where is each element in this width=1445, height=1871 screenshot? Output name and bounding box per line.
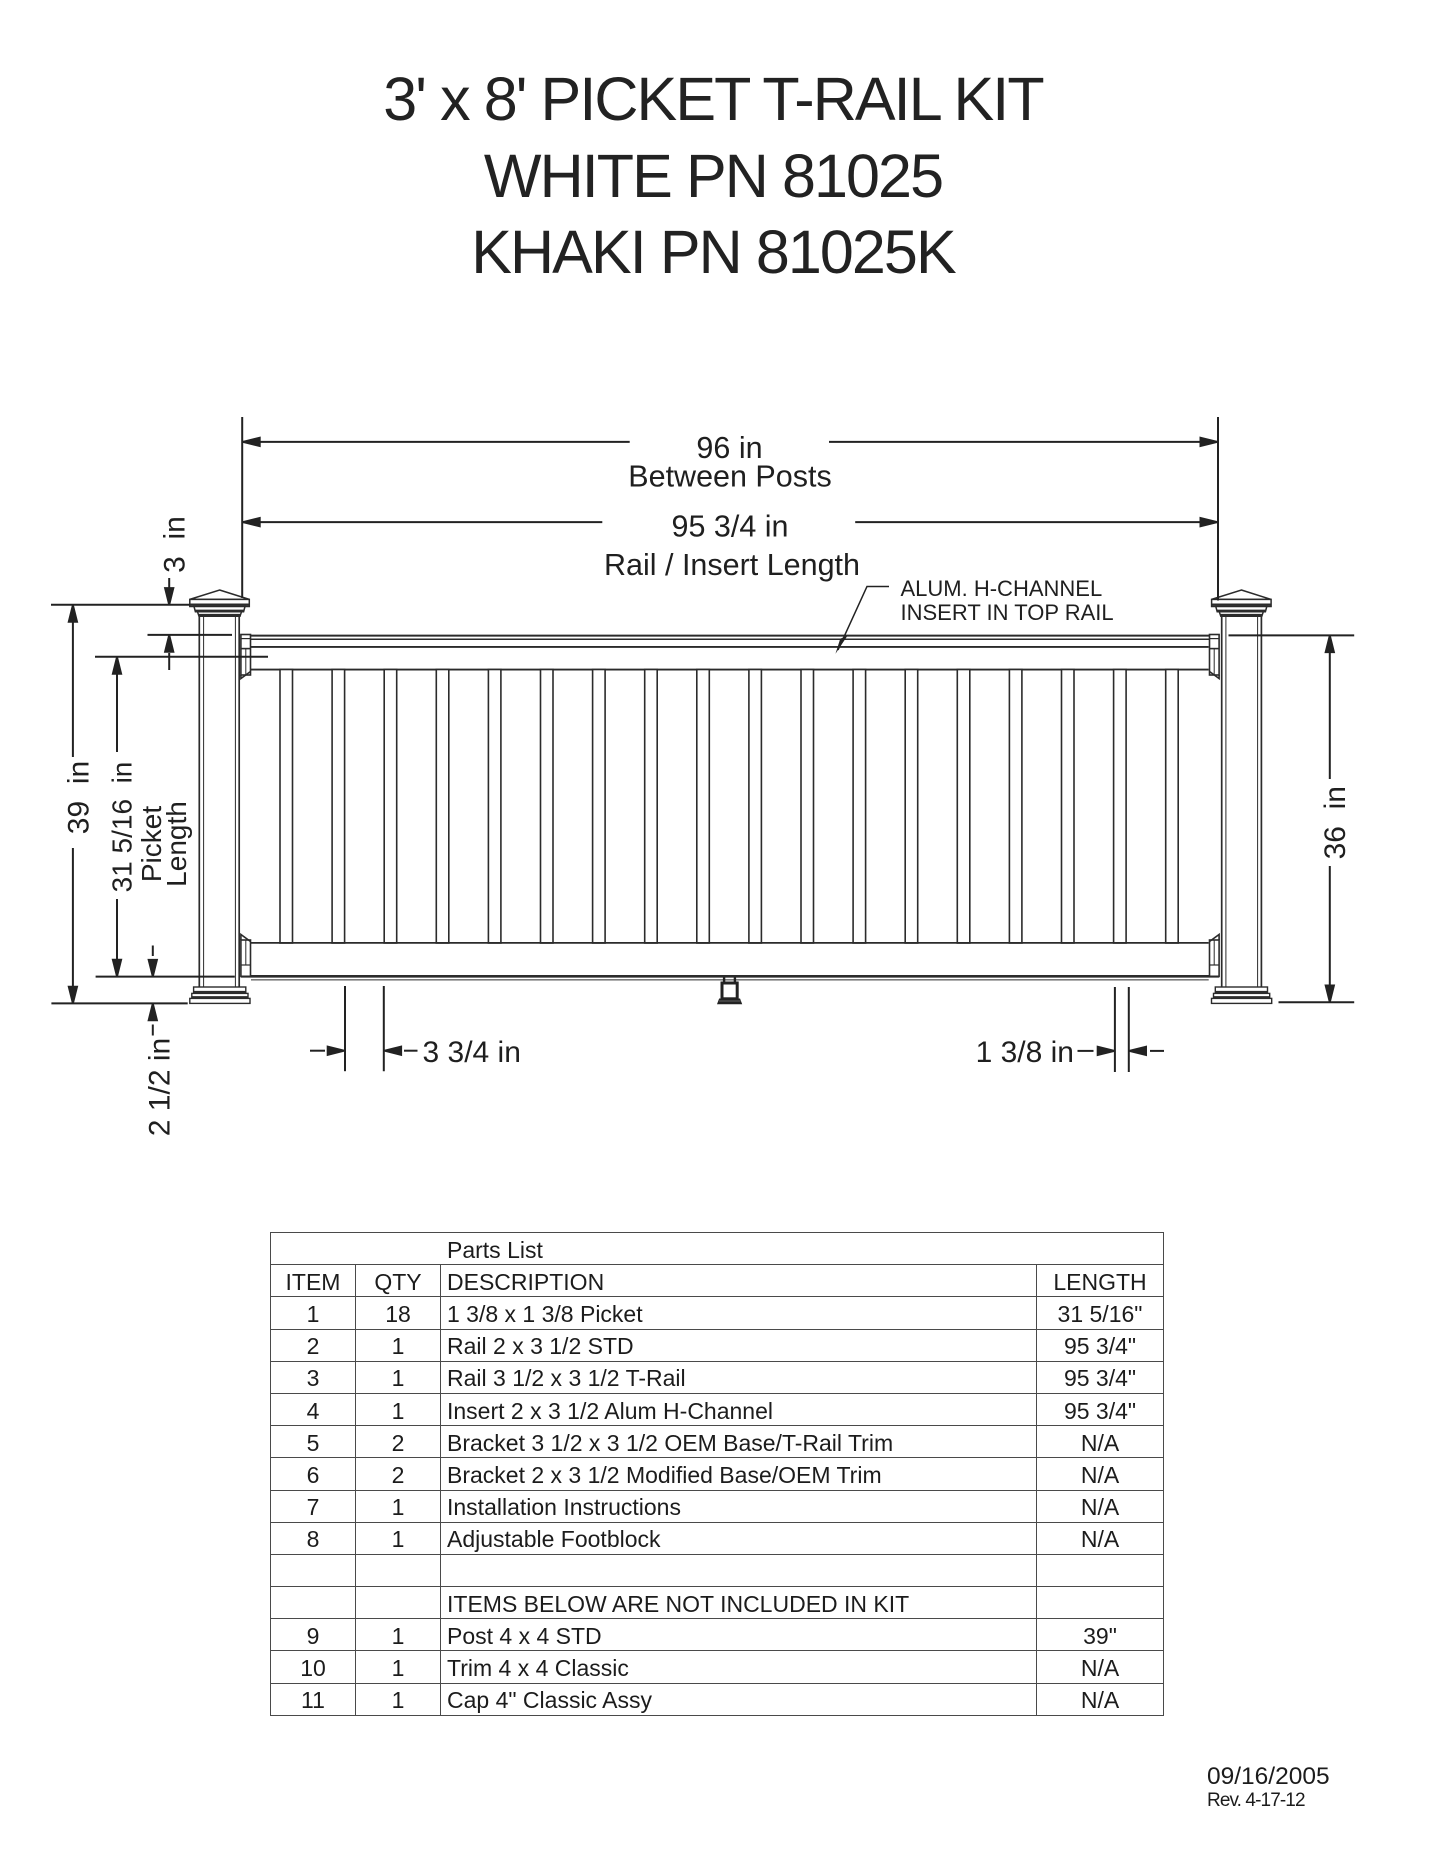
svg-text:Rail / Insert Length: Rail / Insert Length: [604, 548, 860, 582]
svg-text:3 in: 3 in: [158, 516, 191, 573]
svg-text:39 in: 39 in: [62, 761, 95, 834]
svg-text:ALUM. H-CHANNEL: ALUM. H-CHANNEL: [901, 576, 1103, 601]
svg-text:INSERT IN TOP RAIL: INSERT IN TOP RAIL: [901, 600, 1114, 625]
svg-text:Length: Length: [161, 801, 192, 887]
svg-text:31 5/16 in: 31 5/16 in: [107, 762, 138, 893]
svg-text:2 1/2 in: 2 1/2 in: [143, 1038, 176, 1136]
svg-text:36 in: 36 in: [1319, 786, 1352, 859]
svg-text:3 3/4 in: 3 3/4 in: [423, 1036, 521, 1069]
svg-text:Between Posts: Between Posts: [628, 460, 831, 494]
svg-text:95 3/4 in: 95 3/4 in: [671, 510, 788, 544]
svg-text:1 3/8 in: 1 3/8 in: [976, 1036, 1074, 1069]
